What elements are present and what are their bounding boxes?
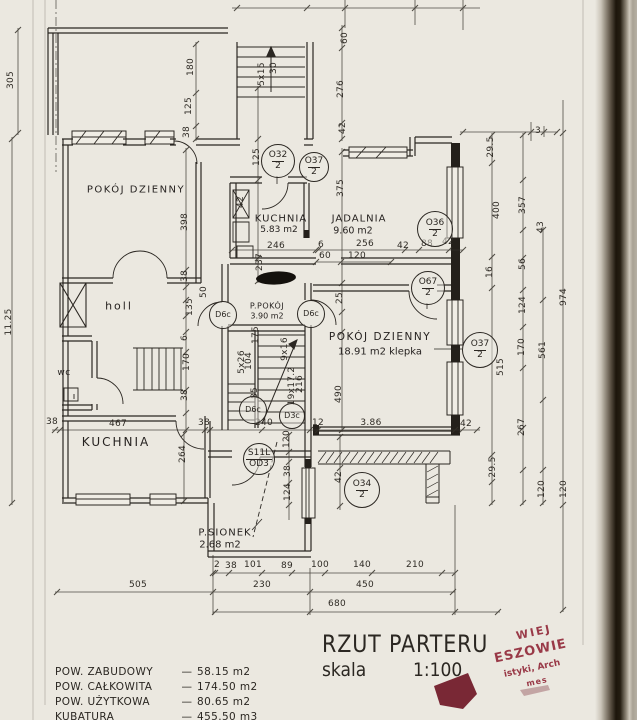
dimension-label: 38 [180, 389, 190, 401]
dimension-label: 680 [328, 599, 346, 609]
symbol-denominator: OD3 [246, 459, 272, 469]
dimension-label: 120 [282, 430, 292, 448]
dimension-label: 230 [253, 580, 271, 590]
dimension-label: 125 [184, 97, 194, 115]
dimension-label: 264 [178, 445, 188, 463]
dimension-label: 974 [559, 288, 569, 306]
room-label: POKÓJ DZIENNY [87, 185, 185, 196]
areas-row: KUBATURA — 455.50 m3 [55, 709, 258, 720]
dimension-label: 170 [517, 338, 527, 356]
symbol-code: O67 [419, 278, 438, 287]
area-dash: — [177, 666, 197, 678]
dimension-label: 6 [318, 240, 324, 250]
symbol-code: O32 [269, 151, 288, 160]
dimension-label: 6 [180, 335, 190, 341]
dimension-label: 60 [340, 32, 350, 44]
stair-boundary-lines [133, 348, 183, 390]
dimension-label: 29.5 [488, 456, 498, 477]
room-label: wc [57, 368, 70, 378]
areas-row: POW. ZABUDOWY — 58.15 m2 [55, 664, 258, 679]
dimension-label: 120 [559, 480, 569, 498]
dimension-label: 42 [236, 196, 246, 208]
symbol-code: S11L [248, 449, 270, 458]
room-label: KUCHNIA [82, 435, 150, 449]
window-door-symbol: D3c [279, 403, 305, 429]
dimension-label: 42 [334, 471, 344, 483]
floorplan-linework [0, 0, 637, 720]
dimension-label: 89 [281, 561, 293, 571]
dimension-label: 38 [225, 561, 237, 571]
symbol-denominator: 2 [308, 167, 320, 177]
symbol-code: D6c [215, 311, 231, 319]
area-value: 58.15 m2 [197, 666, 251, 678]
window-door-symbol: D6c [297, 300, 325, 328]
dimension-label: 210 [406, 560, 424, 570]
dimension-label: 38 [198, 418, 210, 428]
dimension-label: 60 [319, 251, 331, 261]
area-label: POW. ZABUDOWY [55, 666, 177, 678]
dimension-label: 11.25 [4, 308, 14, 335]
dimension-label: 450 [356, 580, 374, 590]
symbol-code: D3c [284, 412, 300, 420]
dimension-label: 400 [492, 201, 502, 219]
dimension-label: 561 [538, 341, 548, 359]
room-area-label: 3.90 m2 [250, 312, 283, 321]
window-door-symbol: S11LOD3 [243, 443, 275, 475]
symbol-denominator: 2 [272, 161, 284, 171]
room-label: holl [105, 300, 133, 313]
areas-table: POW. ZABUDOWY — 58.15 m2 POW. CAŁKOWITA … [55, 664, 258, 720]
dimension-label: 42 [460, 419, 472, 429]
room-area-label: 9.60 m2 [333, 226, 372, 237]
dimension-label: 38 [46, 417, 58, 427]
dimension-label: 140 [353, 560, 371, 570]
symbol-code: D6c [303, 310, 319, 318]
room-label: P.POKÓJ [250, 302, 284, 311]
dimension-label: 490 [334, 385, 344, 403]
symbol-code: O37 [305, 157, 324, 166]
dimension-label: 30 [269, 62, 279, 74]
dimension-label: 100 [311, 560, 329, 570]
dimension-label: 216 [295, 375, 305, 393]
room-area-label: 2.68 m2 [199, 540, 241, 551]
area-value: 174.50 m2 [197, 681, 258, 693]
dimension-label: 2 [214, 560, 220, 570]
area-value: 455.50 m3 [197, 711, 258, 720]
symbol-code: O34 [353, 480, 372, 489]
symbol-code: O37 [471, 340, 490, 349]
dimension-lines [9, 0, 566, 615]
dimension-label: 43 [536, 221, 546, 233]
symbol-code: D6c [245, 406, 261, 414]
symbol-denominator: 2 [422, 288, 434, 298]
dimension-label: 42 [338, 122, 348, 134]
dimension-label: 16 [485, 266, 495, 278]
dimension-label: 9x16 [280, 337, 290, 361]
dimension-label: 101 [244, 560, 262, 570]
area-label: POW. UŻYTKOWA [55, 696, 177, 708]
dimension-label: 38 [182, 126, 192, 138]
areas-row: POW. UŻYTKOWA — 80.65 m2 [55, 694, 258, 709]
scale-label: skala [322, 659, 366, 681]
dimension-label: 50 [199, 286, 209, 298]
dimension-label: 237 [255, 253, 265, 271]
dimension-label: 135 [185, 298, 195, 316]
drawing-scale: skala1:100 [322, 659, 496, 681]
dimension-label: 175 [251, 326, 261, 344]
dimension-label: 267 [517, 418, 527, 436]
symbol-denominator: 2 [474, 350, 486, 360]
window-door-symbol: O342 [344, 472, 380, 508]
area-label: KUBATURA [55, 711, 177, 720]
room-label: JADALNIA [332, 214, 387, 225]
stair-treads [137, 47, 305, 423]
title-block: RZUT PARTERU skala1:100 [322, 630, 515, 681]
dimension-label: 3 [535, 126, 541, 136]
dimension-label: 124 [283, 483, 293, 501]
window-door-symbol: D6c [209, 301, 237, 329]
dimension-label: 357 [518, 196, 528, 214]
room-label: POKÓJ DZIENNY [329, 331, 431, 343]
dimension-label: 5x15 [257, 62, 267, 86]
room-label: KUCHNIA [255, 214, 307, 225]
area-value: 80.65 m2 [197, 696, 251, 708]
dimension-label: 29.5 [486, 136, 496, 157]
dimension-label: 25 [335, 292, 345, 304]
dimension-label: 305 [6, 71, 16, 89]
dimension-label: 3.86 [360, 418, 381, 428]
scale-value: 1:100 [413, 659, 462, 681]
area-label: POW. CAŁKOWITA [55, 681, 177, 693]
symbol-denominator: 2 [356, 490, 368, 500]
dimension-label: 12 [312, 418, 324, 428]
dimension-label: 38 [283, 465, 293, 477]
dimension-label: 120 [537, 480, 547, 498]
dimension-label: 5x26 [237, 350, 247, 374]
dimension-label: 124 [518, 296, 528, 314]
room-label: P.SIONEK [198, 528, 251, 539]
window-door-symbol: D6c [239, 396, 267, 424]
symbol-denominator: 2 [429, 229, 441, 239]
window-door-symbol: O372 [462, 332, 498, 368]
room-area-label: 18.91 m2 klepka [338, 347, 422, 358]
window-door-symbol: O672 [411, 271, 445, 305]
room-area-label: 5.83 m2 [260, 225, 297, 235]
dimension-label: 170 [182, 353, 192, 371]
dimension-label: 375 [336, 179, 346, 197]
dimension-label: 56 [518, 258, 528, 270]
area-dash: — [177, 696, 197, 708]
scanned-floorplan-page: 30511.25180125385x1530602764212542398385… [0, 0, 637, 720]
dimension-label: 467 [109, 419, 127, 429]
walls [48, 28, 460, 557]
drawing-title: RZUT PARTERU [322, 630, 488, 658]
page-edge-shadow [595, 0, 637, 720]
window-door-symbol: O372 [299, 152, 329, 182]
dimension-label: 398 [180, 213, 190, 231]
ink-blot [256, 270, 297, 285]
ventilation-shaft [60, 283, 86, 327]
window-door-symbol: O322 [261, 144, 295, 178]
dimension-label: 120 [348, 251, 366, 261]
dimension-label: 38 [180, 270, 190, 282]
dimension-label: 276 [336, 80, 346, 98]
window-door-symbol: O362 [417, 211, 453, 247]
dimension-label: 515 [496, 358, 506, 376]
area-dash: — [177, 681, 197, 693]
area-dash: — [177, 711, 197, 720]
dimension-label: 246 [267, 241, 285, 251]
dimension-label: 505 [129, 580, 147, 590]
areas-row: POW. CAŁKOWITA — 174.50 m2 [55, 679, 258, 694]
dimension-label: 256 [356, 239, 374, 249]
dimension-label: 180 [186, 58, 196, 76]
dimension-label: 42 [397, 241, 409, 251]
symbol-code: O36 [426, 219, 445, 228]
